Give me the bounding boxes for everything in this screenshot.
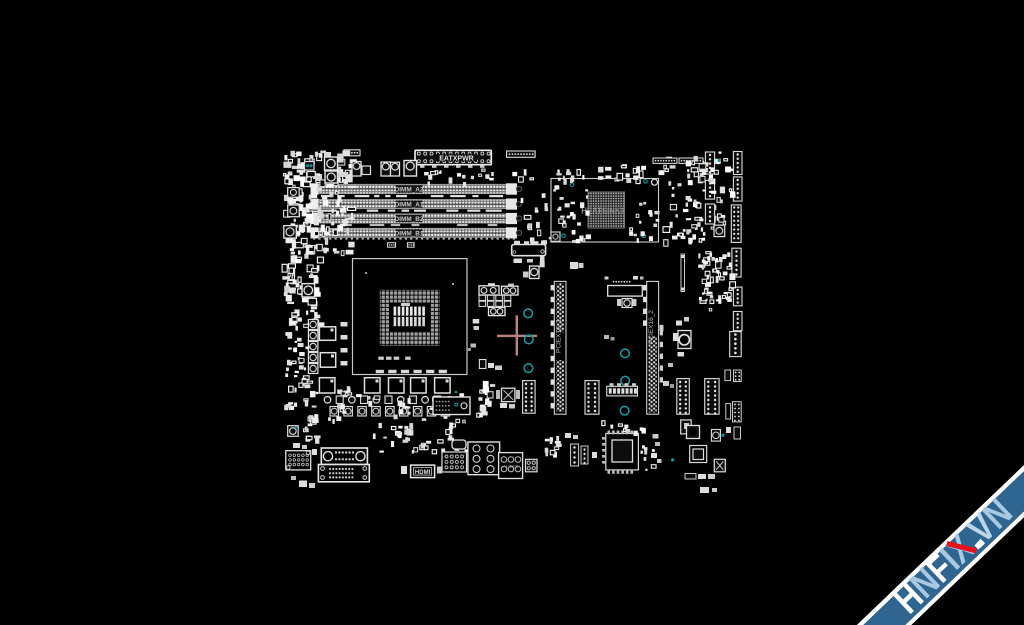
svg-text:HDMI: HDMI — [415, 470, 431, 476]
svg-text:PCIEX16_1: PCIEX16_1 — [556, 319, 563, 353]
svg-text:PCIEX16_2: PCIEX16_2 — [648, 310, 655, 344]
svg-text:DIMM_B2: DIMM_B2 — [395, 216, 424, 223]
svg-text:DIMM_B1: DIMM_B1 — [395, 230, 424, 237]
svg-text:AUDIO: AUDIO — [503, 464, 518, 470]
svg-text:DIMM_A2: DIMM_A2 — [395, 186, 424, 193]
svg-text:DIMM_A1: DIMM_A1 — [395, 202, 424, 209]
svg-text:EATXPWR: EATXPWR — [439, 156, 473, 163]
